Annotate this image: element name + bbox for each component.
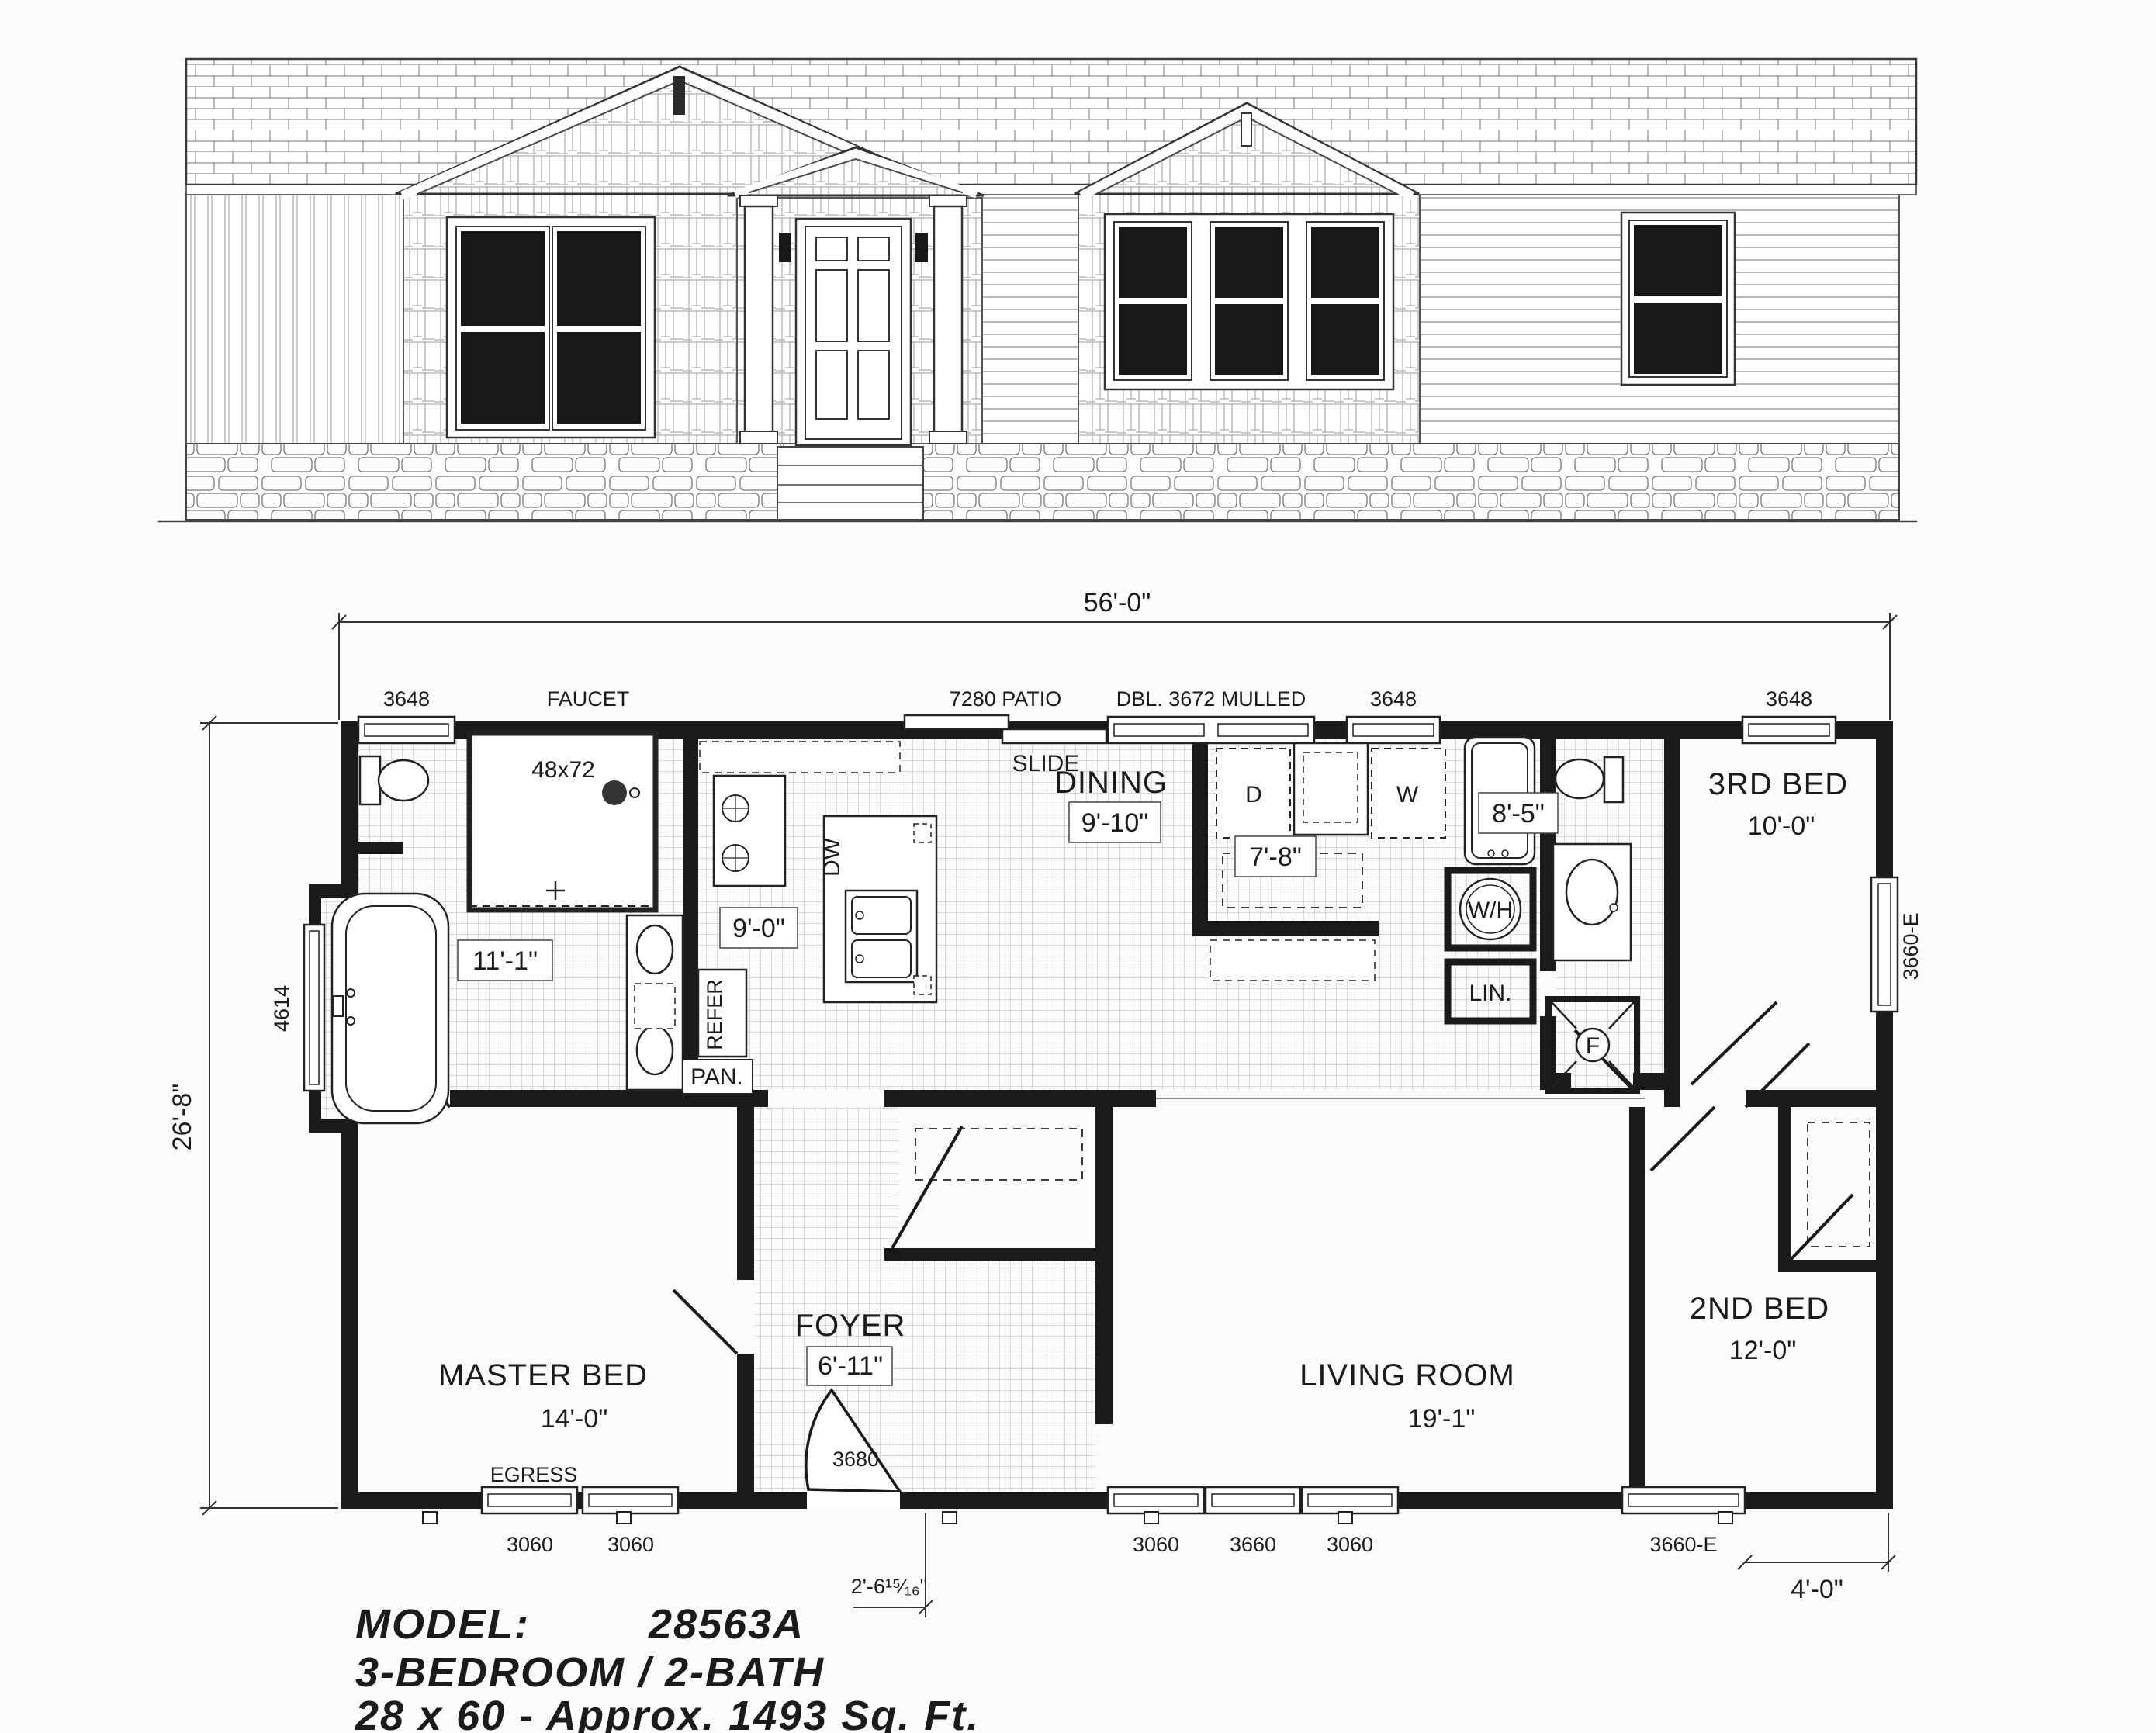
label-dining-size: 9'-10" — [1081, 808, 1149, 838]
label-kitchen-size: 9'-0" — [732, 914, 785, 943]
label-bed2: 2ND BED — [1690, 1292, 1829, 1326]
porch-light — [779, 233, 791, 262]
counter-below — [1210, 940, 1375, 981]
elevation-window-pair — [447, 217, 655, 438]
porch-light — [915, 233, 928, 262]
siding-batten-left — [186, 194, 403, 444]
column-base — [740, 431, 777, 444]
label-master-size: 14'-0" — [541, 1404, 608, 1434]
label-window-3060: 3060 — [1133, 1533, 1179, 1556]
title-block: MODEL: 28563A 3-BEDROOM / 2-BATH 28 x 60… — [355, 1601, 980, 1733]
label-utility-size: 7'-8" — [1249, 842, 1302, 872]
label-shower-size: 48x72 — [531, 757, 595, 783]
label-washer: W — [1396, 782, 1419, 808]
window-3660e-bed3 — [1871, 877, 1898, 1012]
label-bed3-size: 10'-0" — [1748, 811, 1815, 841]
label-bed2-size: 12'-0" — [1729, 1336, 1797, 1365]
label-linen: LIN. — [1469, 981, 1511, 1006]
label-window-3648: 3648 — [383, 687, 430, 711]
gable-vent — [673, 76, 685, 115]
label-living-size: 19'-1" — [1408, 1404, 1476, 1434]
label-dishwasher: DW — [819, 837, 845, 877]
window-dbl-3672-mulled — [1108, 717, 1314, 743]
label-bath2-size: 8'-5" — [1492, 799, 1545, 828]
toilet-tank — [360, 756, 380, 804]
window-3648-bath — [358, 717, 455, 743]
porch-column — [745, 206, 773, 433]
toilet-bowl — [379, 760, 428, 801]
label-master: MASTER BED — [438, 1358, 648, 1392]
label-egress: EGRESS — [490, 1463, 578, 1486]
column-base — [929, 431, 967, 444]
label-bath-size: 11'-1" — [472, 946, 538, 976]
title-model-number: 28563A — [648, 1601, 805, 1648]
label-window-3060: 3060 — [607, 1533, 654, 1556]
column-capital — [740, 195, 777, 206]
label-door-3680: 3680 — [832, 1448, 879, 1471]
dim-right-offset: 4'-0" — [1791, 1575, 1843, 1604]
vanity-double-sink — [627, 915, 683, 1090]
porch-column — [934, 206, 962, 433]
front-elevation — [159, 59, 1916, 521]
toilet-tank — [1604, 757, 1623, 802]
label-dryer: D — [1245, 782, 1262, 808]
label-foyer: FOYER — [795, 1309, 906, 1343]
label-window-3660e-side: 3660-E — [1899, 912, 1922, 980]
label-mulled: DBL. 3672 MULLED — [1116, 687, 1306, 711]
floorplan-sheet: 3648 FAUCET 7280 PATIO DBL. 3672 MULLED … — [0, 0, 2156, 1733]
label-faucet: FAUCET — [547, 687, 630, 711]
dim-foyer-offset: 2'-6¹⁵⁄₁₆" — [851, 1575, 927, 1598]
label-window-3660: 3660 — [1230, 1533, 1276, 1556]
range — [714, 776, 785, 886]
label-patio: 7280 PATIO — [950, 687, 1062, 711]
toilet-bowl — [1556, 759, 1604, 798]
label-window-3660e: 3660-E — [1649, 1533, 1717, 1556]
title-size: 28 x 60 - Approx. 1493 Sq. Ft. — [355, 1693, 980, 1733]
elevation-triple-window — [1105, 214, 1393, 389]
elevation-single-window — [1621, 213, 1735, 385]
window-3648-bed3 — [1742, 717, 1836, 743]
window-3648-utility — [1347, 717, 1440, 743]
label-living: LIVING ROOM — [1299, 1358, 1515, 1392]
elevation-entry-door — [779, 219, 928, 445]
label-furnace: F — [1586, 1033, 1600, 1059]
entry-steps — [777, 447, 923, 520]
pier-marks — [423, 1512, 1732, 1524]
label-window-3648: 3648 — [1766, 687, 1812, 711]
gable-vent — [1241, 113, 1251, 146]
stone-skirt — [186, 444, 1899, 520]
label-water-heater: W/H — [1468, 898, 1513, 923]
dim-overall-depth: 26'-8" — [168, 1084, 197, 1151]
dim-overall-width: 56'-0" — [1084, 588, 1151, 617]
upper-cabinets — [700, 742, 900, 773]
title-config: 3-BEDROOM / 2-BATH — [355, 1649, 825, 1696]
title-model-label: MODEL: — [355, 1601, 530, 1648]
label-dining: DINING — [1054, 766, 1168, 800]
drawing-canvas: 3648 FAUCET 7280 PATIO DBL. 3672 MULLED … — [0, 0, 2156, 1733]
label-refrigerator: REFER — [703, 979, 726, 1050]
label-window-3060: 3060 — [507, 1533, 553, 1556]
label-window-4614: 4614 — [270, 985, 293, 1032]
door-3680-gap — [807, 1492, 900, 1509]
label-window-3648: 3648 — [1370, 687, 1417, 711]
column-capital — [929, 195, 967, 206]
window-4614-tub-bay — [304, 925, 324, 1091]
garden-tub — [332, 894, 448, 1123]
label-foyer-size: 6'-11" — [818, 1351, 883, 1381]
roof-shingles — [186, 59, 1916, 185]
label-window-3060: 3060 — [1327, 1533, 1373, 1556]
label-bed3: 3RD BED — [1708, 767, 1848, 801]
sink — [1566, 860, 1618, 925]
label-pantry: PAN. — [690, 1064, 743, 1090]
tub-faucet — [334, 996, 343, 1016]
